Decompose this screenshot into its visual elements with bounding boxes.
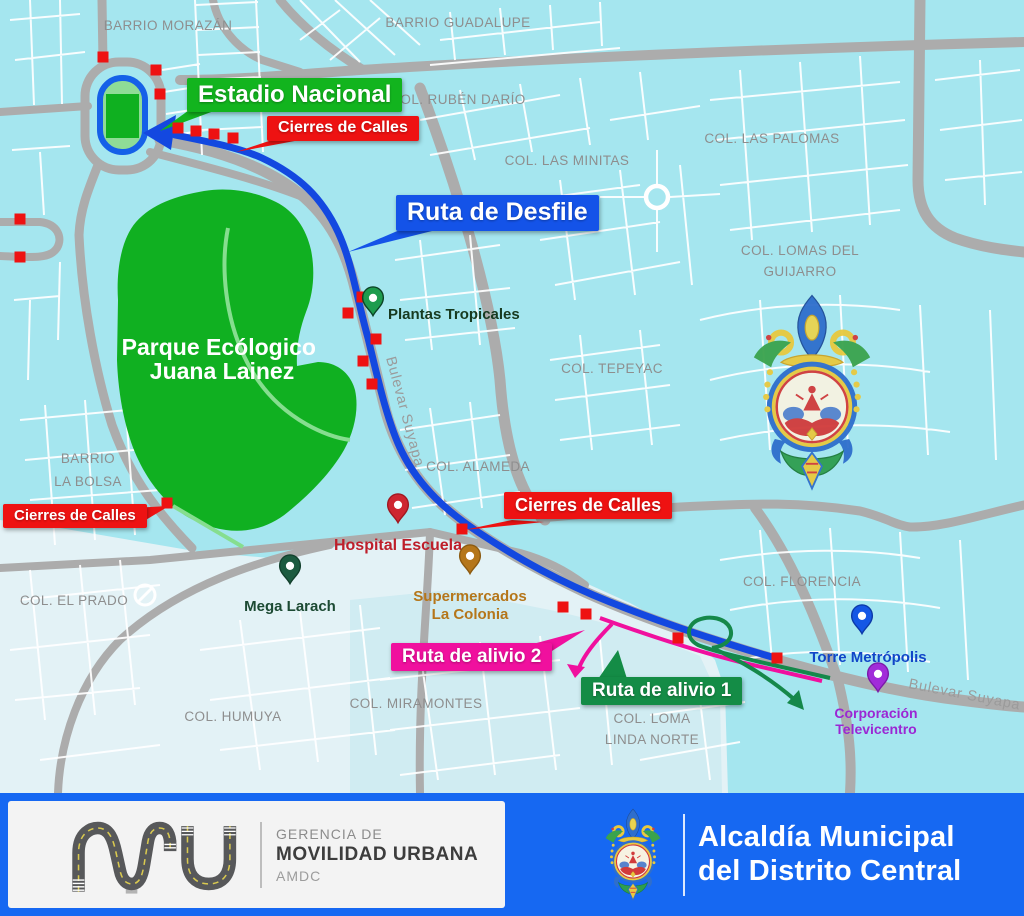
mu-road-logo-icon xyxy=(66,815,254,895)
hospital-escuela-label: Hospital Escuela xyxy=(334,537,462,554)
estadio-nacional-callout: Estadio Nacional xyxy=(187,78,402,112)
estadio-nacional-label: Estadio Nacional xyxy=(198,81,391,108)
cierres-top-label: Cierres de Calles xyxy=(278,119,408,136)
district-label: COL. EL PRADO xyxy=(20,593,128,608)
map-canvas: Plantas TropicalesHospital EscuelaMega L… xyxy=(0,0,1024,793)
torre-metropolis-label: Torre Metrópolis xyxy=(809,649,926,666)
plantas-tropicales-label: Plantas Tropicales xyxy=(388,306,520,323)
ruta-alivio-1-callout: Ruta de alivio 1 xyxy=(581,677,742,705)
corporacion-televicentro-label: CorporaciónTelevicentro xyxy=(834,705,917,737)
footer-divider xyxy=(260,822,262,888)
route-map-page: Plantas TropicalesHospital EscuelaMega L… xyxy=(0,0,1024,916)
cierres-center-label: Cierres de Calles xyxy=(515,495,661,515)
cierres-center-callout: Cierres de Calles xyxy=(504,492,672,519)
closure-square xyxy=(191,126,202,137)
amdc-label: AMDC xyxy=(276,868,478,884)
district-label: BARRIO MORAZÁN xyxy=(104,18,233,33)
cierres-top-callout: Cierres de Calles xyxy=(267,116,419,141)
closure-square xyxy=(15,252,26,263)
district-label: COL. FLORENCIA xyxy=(743,574,861,589)
movilidad-urbana-label: MOVILIDAD URBANA xyxy=(276,844,478,866)
alcaldia-line2: del Distrito Central xyxy=(698,855,961,888)
district-label: COL. ALAMEDA xyxy=(426,459,530,474)
ruta-alivio-1-label: Ruta de alivio 1 xyxy=(592,680,731,701)
alcaldia-brand: Alcaldía Municipal del Distrito Central xyxy=(601,793,961,916)
ruta-alivio-2-label: Ruta de alivio 2 xyxy=(402,646,541,667)
closure-square xyxy=(371,334,382,345)
closure-square xyxy=(673,633,684,644)
closure-square xyxy=(173,123,184,134)
footer-bar: GERENCIA DE MOVILIDAD URBANA AMDC Alcald… xyxy=(0,793,1024,916)
ruta-desfile-label: Ruta de Desfile xyxy=(407,198,588,226)
footer-divider-white xyxy=(683,814,685,896)
district-label: COL. RUBÉN DARÍO xyxy=(390,92,525,107)
closure-square xyxy=(155,89,166,100)
park-label: Parque Ecólogico Juana Lainez xyxy=(122,334,323,384)
estadio-nacional-stadium xyxy=(100,78,145,152)
closure-square xyxy=(228,133,239,144)
closure-square xyxy=(15,214,26,225)
closure-square xyxy=(772,653,783,664)
ruta-alivio-2-callout: Ruta de alivio 2 xyxy=(391,643,552,671)
alcaldia-line1: Alcaldía Municipal xyxy=(698,821,961,854)
mu-logo-card: GERENCIA DE MOVILIDAD URBANA AMDC xyxy=(8,801,505,908)
city-map: Plantas TropicalesHospital EscuelaMega L… xyxy=(0,0,1024,793)
closure-square xyxy=(162,498,173,509)
mega-larach-label: Mega Larach xyxy=(244,598,336,615)
closure-square xyxy=(367,379,378,390)
closure-square xyxy=(209,129,220,140)
closure-square xyxy=(558,602,569,613)
cierres-left-callout: Cierres de Calles xyxy=(3,504,147,528)
district-label: COL. LAS MINITAS xyxy=(505,153,630,168)
cierres-left-label: Cierres de Calles xyxy=(14,507,136,524)
closure-square xyxy=(457,524,468,535)
closure-square xyxy=(581,609,592,620)
district-label: COL. MIRAMONTES xyxy=(350,696,483,711)
district-label: COL. TEPEYAC xyxy=(561,361,663,376)
district-label: COL. HUMUYA xyxy=(184,709,281,724)
closure-square xyxy=(98,52,109,63)
district-label: COL. LAS PALOMAS xyxy=(704,131,839,146)
district-label: BARRIO GUADALUPE xyxy=(385,15,530,30)
alcaldia-crest-icon xyxy=(601,805,665,904)
closure-square xyxy=(358,356,369,367)
ruta-desfile-callout: Ruta de Desfile xyxy=(396,195,599,231)
closure-square xyxy=(151,65,162,76)
closure-square xyxy=(343,308,354,319)
gerencia-label: GERENCIA DE xyxy=(276,826,478,842)
